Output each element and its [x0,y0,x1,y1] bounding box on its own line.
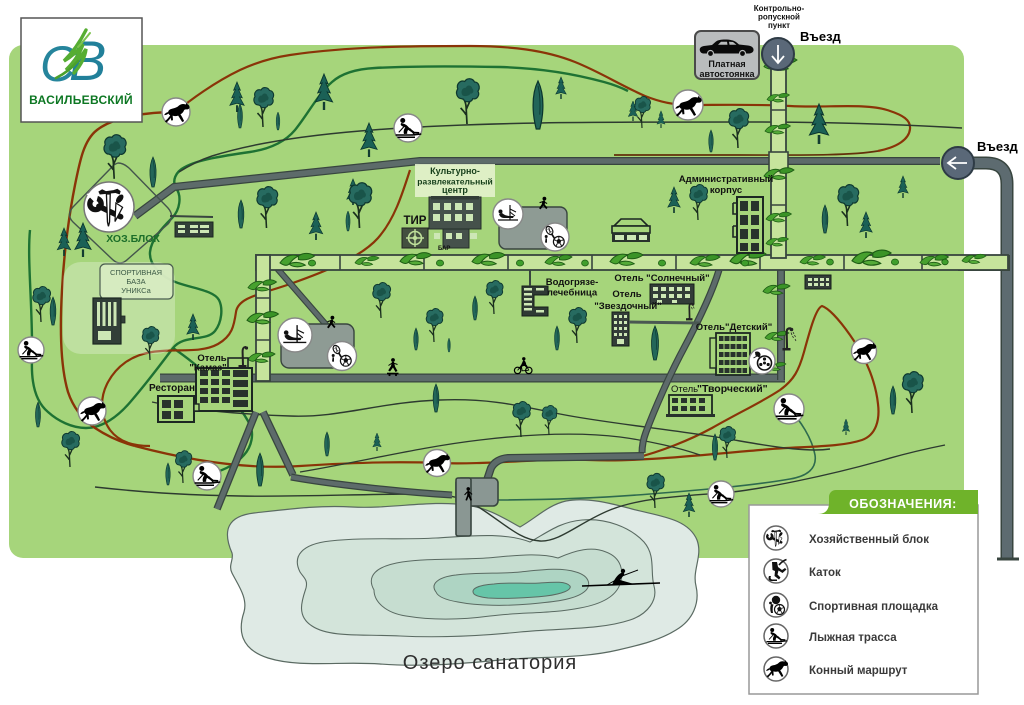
svg-text:Отель"Детский": Отель"Детский" [696,322,773,333]
svg-text:Ресторан: Ресторан [149,383,195,394]
svg-text:Административный: Административный [679,174,774,185]
svg-text:"Творческий": "Творческий" [697,383,768,395]
svg-text:Въезд: Въезд [977,139,1019,154]
svg-text:УНИКСа: УНИКСа [121,286,151,295]
svg-text:ОБОЗНАЧЕНИЯ:: ОБОЗНАЧЕНИЯ: [849,497,957,511]
svg-text:Въезд: Въезд [800,29,842,44]
svg-text:пункт: пункт [768,21,790,30]
svg-text:центр: центр [442,185,468,195]
svg-text:ХОЗ.БЛОК: ХОЗ.БЛОК [106,233,160,245]
svg-text:Водогрязе-: Водогрязе- [546,277,599,288]
svg-text:Отель: Отель [612,289,641,300]
svg-text:ТИР: ТИР [404,215,427,227]
svg-text:Платная: Платная [708,59,745,69]
svg-text:автостоянка: автостоянка [700,69,756,79]
svg-text:СПОРТИВНАЯ: СПОРТИВНАЯ [110,268,162,277]
svg-text:Отель "Солнечный": Отель "Солнечный" [614,273,709,284]
svg-text:БАР: БАР [438,246,450,252]
svg-text:"Камаз": "Камаз" [189,363,226,374]
svg-text:Озеро санатория: Озеро санатория [403,652,577,674]
svg-text:Каток: Каток [809,567,841,579]
svg-text:БАЗА: БАЗА [126,277,145,286]
svg-text:"Звездочный": "Звездочный" [594,301,661,312]
svg-text:Конный маршрут: Конный маршрут [809,665,908,677]
svg-text:Хозяйственный блок: Хозяйственный блок [809,534,929,546]
svg-text:Культурно-: Культурно- [430,166,480,176]
svg-text:корпус: корпус [710,185,742,196]
svg-text:Лыжная трасса: Лыжная трасса [809,632,897,644]
svg-text:ВАСИЛЬЕВСКИЙ: ВАСИЛЬЕВСКИЙ [29,92,133,107]
svg-text:лечебница: лечебница [547,288,598,299]
svg-text:Отель: Отель [671,384,698,395]
svg-text:Спортивная площадка: Спортивная площадка [809,601,939,613]
